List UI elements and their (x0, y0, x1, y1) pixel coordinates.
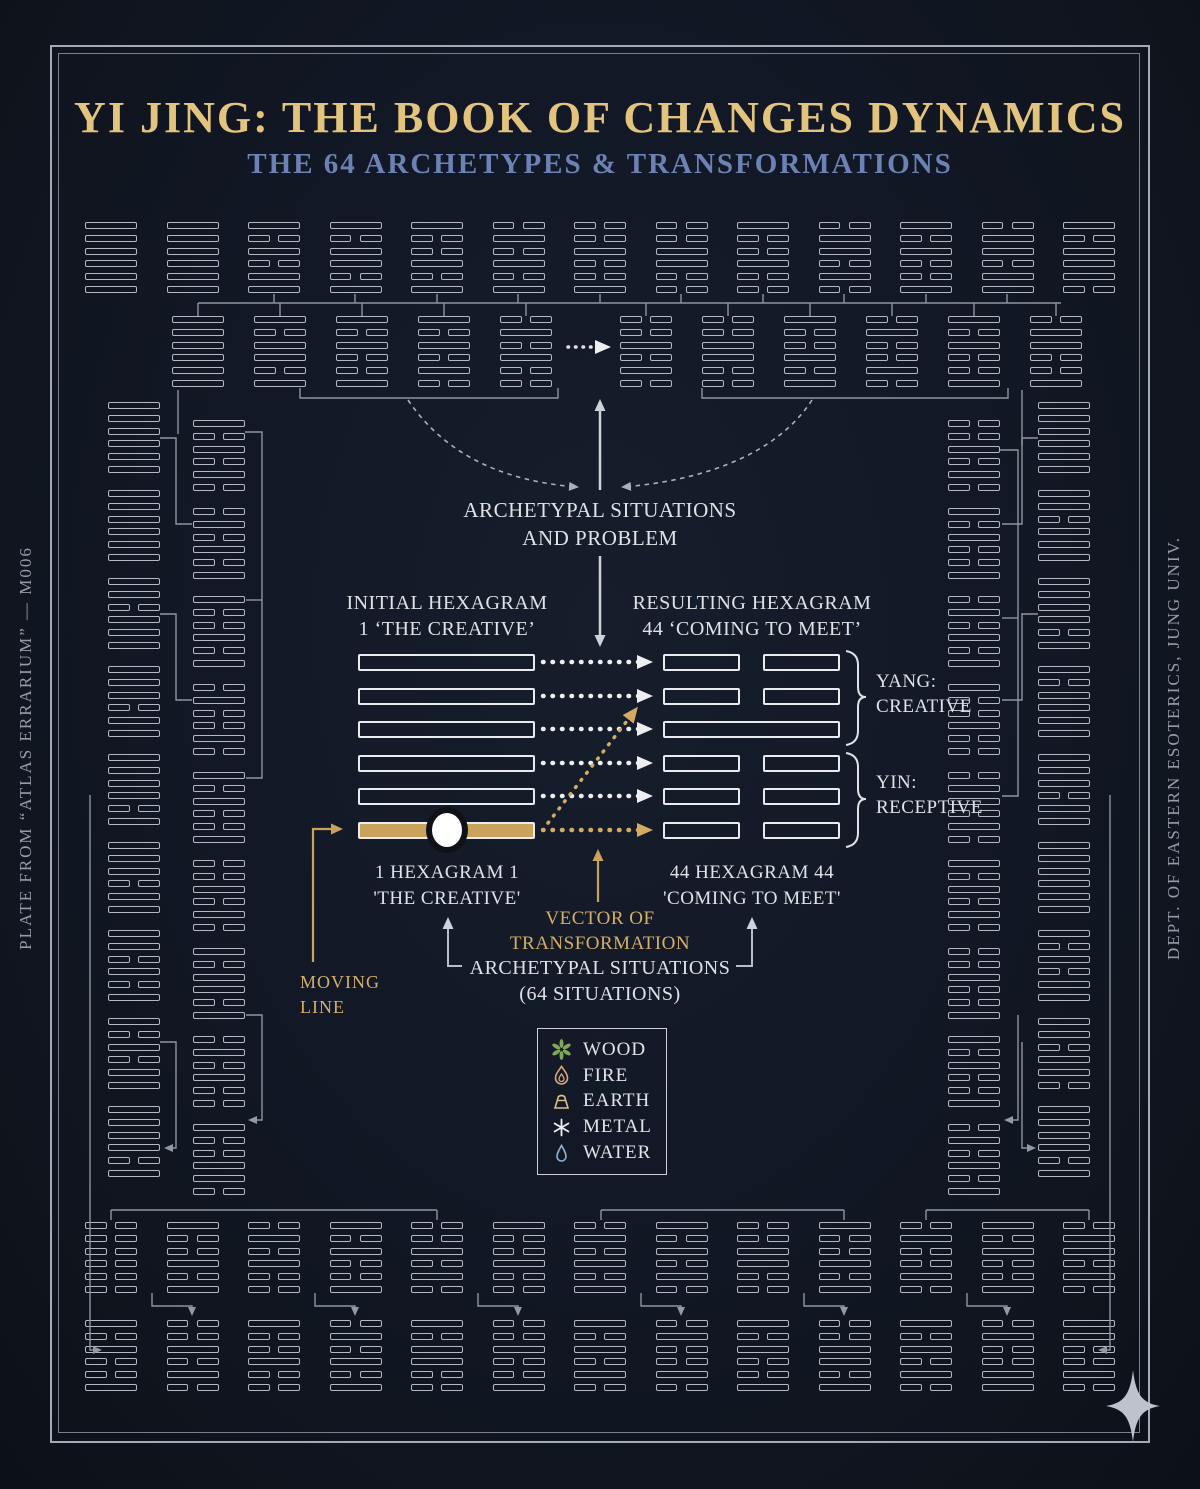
archetypal-top-label: ARCHETYPAL SITUATIONS (463, 498, 736, 523)
water-icon (551, 1143, 572, 1164)
legend-label-earth: EARTH (583, 1090, 650, 1112)
archetypal-top-label-2: AND PROBLEM (522, 526, 677, 551)
resulting-caption-2: 'COMING TO MEET' (663, 888, 841, 910)
resulting-hexagram-label: RESULTING HEXAGRAM (633, 592, 872, 615)
moving-line-label: MOVING (300, 972, 380, 993)
legend-label-water: WATER (583, 1142, 651, 1164)
legend-item-water: WATER (551, 1142, 666, 1164)
connector-overlay (0, 0, 1200, 1489)
page-subtitle: THE 64 ARCHETYPES & TRANSFORMATIONS (247, 148, 952, 181)
vector-label: VECTOR OF (545, 908, 654, 930)
legend-item-wood: WOOD (551, 1039, 666, 1061)
initial-hexagram-label: INITIAL HEXAGRAM (346, 592, 547, 615)
vector-label-2: TRANSFORMATION (510, 933, 690, 955)
legend-item-metal: METAL (551, 1116, 666, 1138)
wood-icon (551, 1039, 572, 1060)
moving-line-arrow (313, 829, 340, 962)
metal-icon (551, 1117, 572, 1138)
resulting-caption: 44 HEXAGRAM 44 (670, 862, 834, 884)
initial-hexagram-label-2: 1 ‘THE CREATIVE’ (359, 618, 536, 641)
top-tree-connectors (178, 294, 1061, 446)
elements-legend: WOOD FIRE EARTH (537, 1028, 667, 1175)
situations-label: ARCHETYPAL SITUATIONS (470, 957, 731, 980)
legend-item-fire: FIRE (551, 1065, 666, 1087)
legend-item-earth: EARTH (551, 1090, 666, 1112)
resulting-hexagram-label-2: 44 ‘COMING TO MEET’ (642, 618, 861, 641)
poster-canvas: YI JING: THE BOOK OF CHANGES DYNAMICS TH… (0, 0, 1200, 1489)
yang-label: YANG: (876, 671, 937, 693)
page-title: YI JING: THE BOOK OF CHANGES DYNAMICS (74, 92, 1126, 143)
yang-label-2: CREATIVE (876, 696, 972, 718)
moving-line-label-2: LINE (300, 997, 345, 1018)
vector-diagonal-arrow (548, 717, 630, 823)
initial-caption-2: 'THE CREATIVE' (373, 888, 520, 910)
initial-caption: 1 HEXAGRAM 1 (375, 862, 519, 884)
sparkle-icon (1106, 1370, 1160, 1442)
legend-label-metal: METAL (583, 1116, 652, 1138)
transformation-arrows (543, 662, 640, 830)
yin-label-2: RECEPTIVE (876, 797, 983, 819)
yin-label: YIN: (876, 772, 917, 794)
legend-label-wood: WOOD (583, 1039, 646, 1061)
left-margin-caption: PLATE FROM “ATLAS ERRARIUM” — M006 (16, 546, 36, 950)
right-margin-caption: DEPT. OF EASTERN ESOTERICS, JUNG UNIV. (1164, 536, 1184, 960)
legend-label-fire: FIRE (583, 1065, 628, 1087)
fire-icon (551, 1065, 572, 1086)
situations-label-2: (64 SITUATIONS) (519, 983, 680, 1006)
earth-icon (551, 1091, 572, 1112)
yang-yin-braces (846, 651, 866, 847)
